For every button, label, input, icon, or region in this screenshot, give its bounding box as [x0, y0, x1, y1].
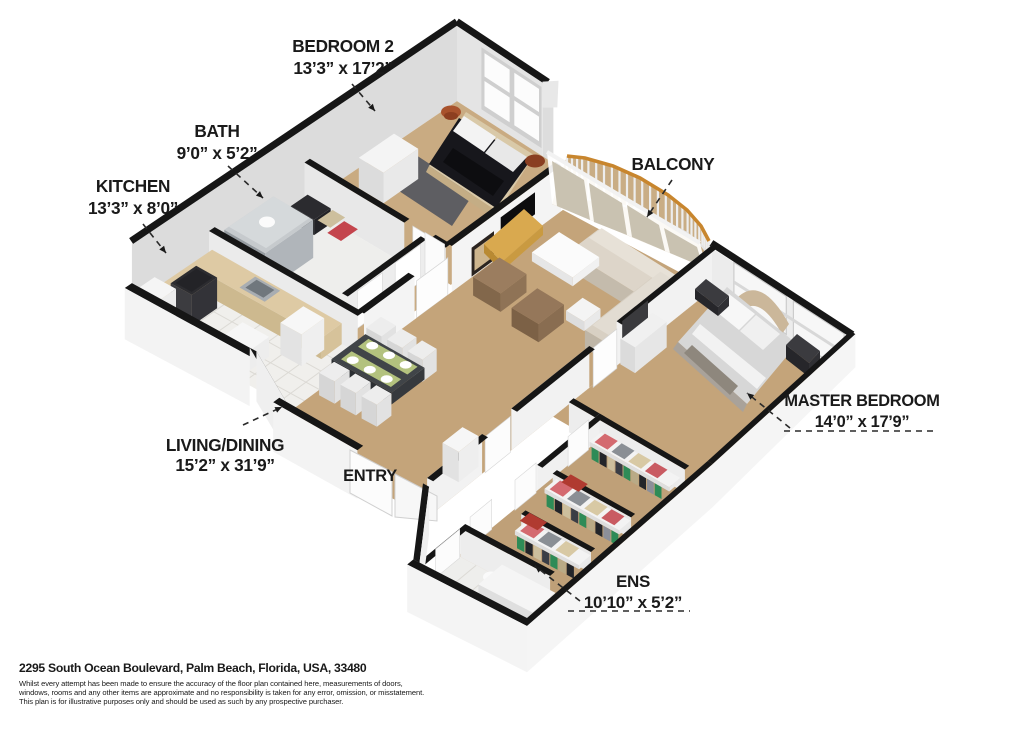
svg-text:13’3” x 17’2”: 13’3” x 17’2”: [293, 58, 392, 78]
svg-text:MASTER BEDROOM: MASTER BEDROOM: [784, 392, 939, 410]
svg-text:BALCONY: BALCONY: [632, 154, 716, 174]
svg-text:15’2” x 31’9”: 15’2” x 31’9”: [175, 455, 274, 475]
svg-text:Whilst every attempt has been: Whilst every attempt has been made to en…: [19, 679, 403, 688]
svg-text:BATH: BATH: [194, 121, 239, 141]
svg-text:windows, rooms and any other i: windows, rooms and any other items are a…: [18, 688, 424, 697]
svg-text:This plan is for illustrative: This plan is for illustrative purposes o…: [19, 697, 343, 706]
svg-text:14’0” x 17’9”: 14’0” x 17’9”: [815, 413, 910, 431]
svg-text:10’10” x 5’2”: 10’10” x 5’2”: [584, 593, 682, 612]
svg-text:9’0” x 5’2”: 9’0” x 5’2”: [177, 143, 258, 163]
svg-text:ENS: ENS: [616, 572, 650, 591]
svg-text:LIVING/DINING: LIVING/DINING: [166, 435, 284, 455]
svg-text:2295 South Ocean Boulevard, Pa: 2295 South Ocean Boulevard, Palm Beach, …: [19, 661, 367, 675]
svg-text:BEDROOM 2: BEDROOM 2: [292, 36, 393, 56]
svg-text:13’3” x 8’0”: 13’3” x 8’0”: [88, 198, 178, 218]
svg-text:KITCHEN: KITCHEN: [96, 176, 170, 196]
svg-text:ENTRY: ENTRY: [343, 467, 397, 485]
